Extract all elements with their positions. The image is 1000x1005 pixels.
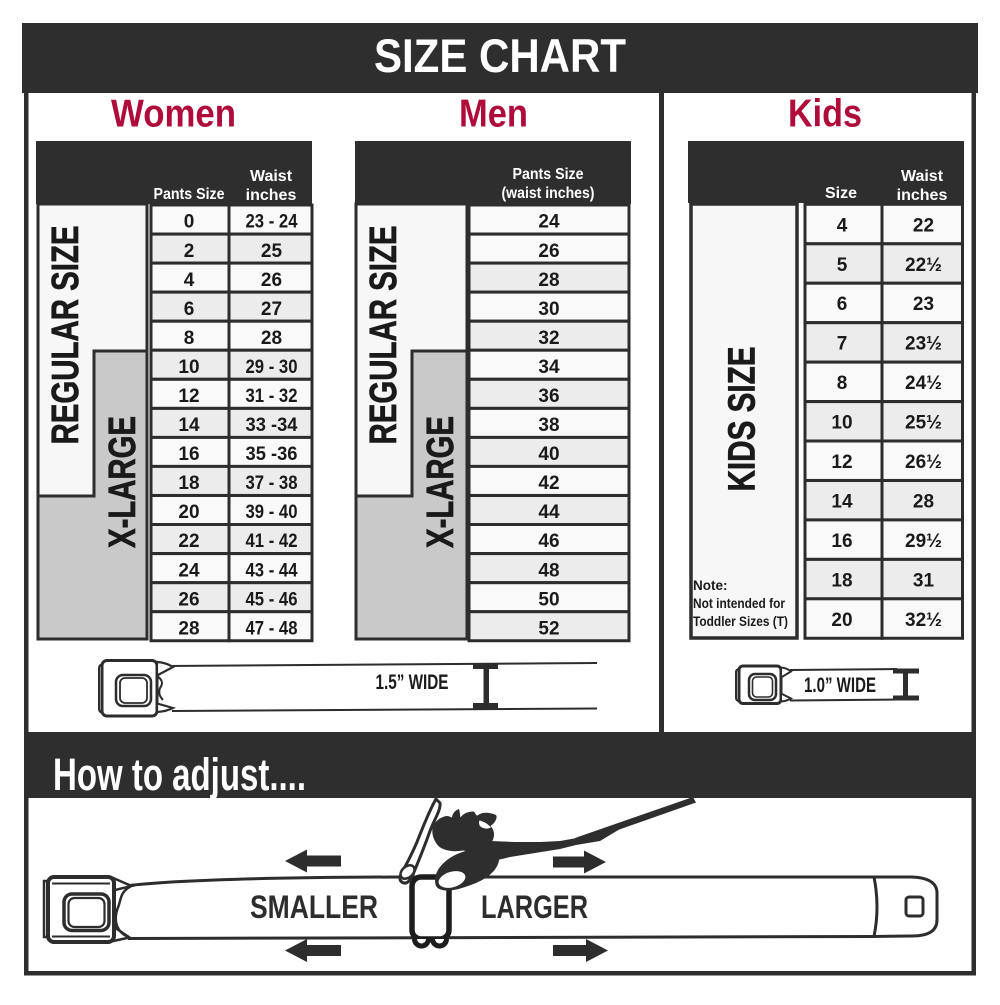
svg-text:25: 25 <box>261 241 283 262</box>
svg-text:SIZE CHART: SIZE CHART <box>374 30 626 83</box>
svg-text:26: 26 <box>538 241 559 262</box>
svg-text:Note:: Note: <box>693 578 728 593</box>
svg-text:REGULAR SIZE: REGULAR SIZE <box>45 226 87 445</box>
svg-text:26½: 26½ <box>905 452 942 473</box>
svg-text:6: 6 <box>837 294 848 315</box>
svg-text:Pants Size: Pants Size <box>154 186 225 203</box>
svg-text:36: 36 <box>538 386 559 407</box>
svg-text:38: 38 <box>538 415 559 436</box>
svg-text:32½: 32½ <box>905 610 942 631</box>
svg-text:31: 31 <box>913 570 935 591</box>
svg-text:5: 5 <box>837 255 848 276</box>
svg-text:Not intended for: Not intended for <box>693 596 786 611</box>
svg-text:24: 24 <box>538 212 560 233</box>
svg-text:27: 27 <box>261 299 282 320</box>
svg-text:18: 18 <box>178 473 199 494</box>
svg-text:16: 16 <box>831 531 852 552</box>
svg-text:16: 16 <box>178 444 199 465</box>
svg-text:18: 18 <box>831 570 852 591</box>
svg-text:LARGER: LARGER <box>481 889 588 925</box>
svg-text:24½: 24½ <box>905 373 942 394</box>
svg-text:Men: Men <box>459 93 528 136</box>
svg-text:35 -36: 35 -36 <box>246 444 298 465</box>
svg-text:REGULAR SIZE: REGULAR SIZE <box>363 226 405 445</box>
svg-text:48: 48 <box>538 560 559 581</box>
svg-text:28: 28 <box>913 492 934 513</box>
svg-text:20: 20 <box>178 502 199 523</box>
svg-text:42: 42 <box>538 473 559 494</box>
svg-text:46: 46 <box>538 531 559 552</box>
svg-text:23 - 24: 23 - 24 <box>246 212 298 233</box>
svg-text:22: 22 <box>913 215 934 236</box>
svg-text:How to adjust....: How to adjust.... <box>53 749 306 800</box>
svg-text:47 - 48: 47 - 48 <box>246 618 298 639</box>
svg-text:39 - 40: 39 - 40 <box>246 502 298 523</box>
svg-text:(waist inches): (waist inches) <box>502 185 595 202</box>
svg-text:41 - 42: 41 - 42 <box>246 531 298 552</box>
svg-text:KIDS SIZE: KIDS SIZE <box>722 347 764 492</box>
svg-text:26: 26 <box>178 589 199 610</box>
svg-text:28: 28 <box>261 328 282 349</box>
svg-text:Toddler Sizes (T): Toddler Sizes (T) <box>693 614 788 629</box>
svg-text:12: 12 <box>178 386 199 407</box>
svg-text:12: 12 <box>831 452 852 473</box>
svg-text:25½: 25½ <box>905 413 942 434</box>
svg-text:32: 32 <box>538 328 559 349</box>
svg-text:10: 10 <box>831 413 852 434</box>
svg-text:10: 10 <box>178 357 199 378</box>
svg-text:52: 52 <box>538 618 559 639</box>
svg-text:Size: Size <box>825 185 857 202</box>
svg-text:0: 0 <box>184 212 195 233</box>
svg-text:4: 4 <box>837 215 848 236</box>
svg-text:34: 34 <box>538 357 560 378</box>
svg-text:50: 50 <box>538 589 559 610</box>
svg-text:24: 24 <box>178 560 200 581</box>
svg-text:23: 23 <box>913 294 934 315</box>
svg-text:29 - 30: 29 - 30 <box>246 357 298 378</box>
svg-text:2: 2 <box>184 241 195 262</box>
svg-text:4: 4 <box>184 270 195 291</box>
svg-text:33 -34: 33 -34 <box>246 415 298 436</box>
svg-text:X-LARGE: X-LARGE <box>102 416 144 548</box>
svg-text:7: 7 <box>837 334 848 355</box>
svg-text:28: 28 <box>538 270 559 291</box>
svg-text:8: 8 <box>184 328 195 349</box>
svg-text:Kids: Kids <box>788 93 862 136</box>
svg-text:X-LARGE: X-LARGE <box>420 416 462 548</box>
svg-text:44: 44 <box>538 502 560 523</box>
svg-text:1.0” WIDE: 1.0” WIDE <box>804 673 876 697</box>
svg-text:31 - 32: 31 - 32 <box>246 386 298 407</box>
svg-text:30: 30 <box>538 299 559 320</box>
svg-text:14: 14 <box>831 492 853 513</box>
svg-text:22: 22 <box>178 531 199 552</box>
svg-text:43 - 44: 43 - 44 <box>246 560 298 581</box>
svg-text:20: 20 <box>831 610 852 631</box>
svg-text:22½: 22½ <box>905 255 942 276</box>
svg-text:Pants Size: Pants Size <box>513 166 584 183</box>
svg-text:37 - 38: 37 - 38 <box>246 473 298 494</box>
svg-text:Waist: Waist <box>901 168 944 185</box>
svg-text:26: 26 <box>261 270 282 291</box>
svg-text:inches: inches <box>246 187 297 204</box>
svg-text:Women: Women <box>111 93 236 136</box>
svg-text:SMALLER: SMALLER <box>250 889 378 925</box>
svg-text:inches: inches <box>897 187 948 204</box>
svg-text:1.5” WIDE: 1.5” WIDE <box>376 670 449 694</box>
svg-text:45 - 46: 45 - 46 <box>246 589 298 610</box>
svg-text:Waist: Waist <box>250 168 293 185</box>
svg-text:6: 6 <box>184 299 195 320</box>
svg-text:40: 40 <box>538 444 559 465</box>
svg-text:28: 28 <box>178 618 199 639</box>
svg-text:14: 14 <box>178 415 200 436</box>
svg-text:8: 8 <box>837 373 848 394</box>
svg-text:29½: 29½ <box>905 531 942 552</box>
svg-text:23½: 23½ <box>905 334 942 355</box>
